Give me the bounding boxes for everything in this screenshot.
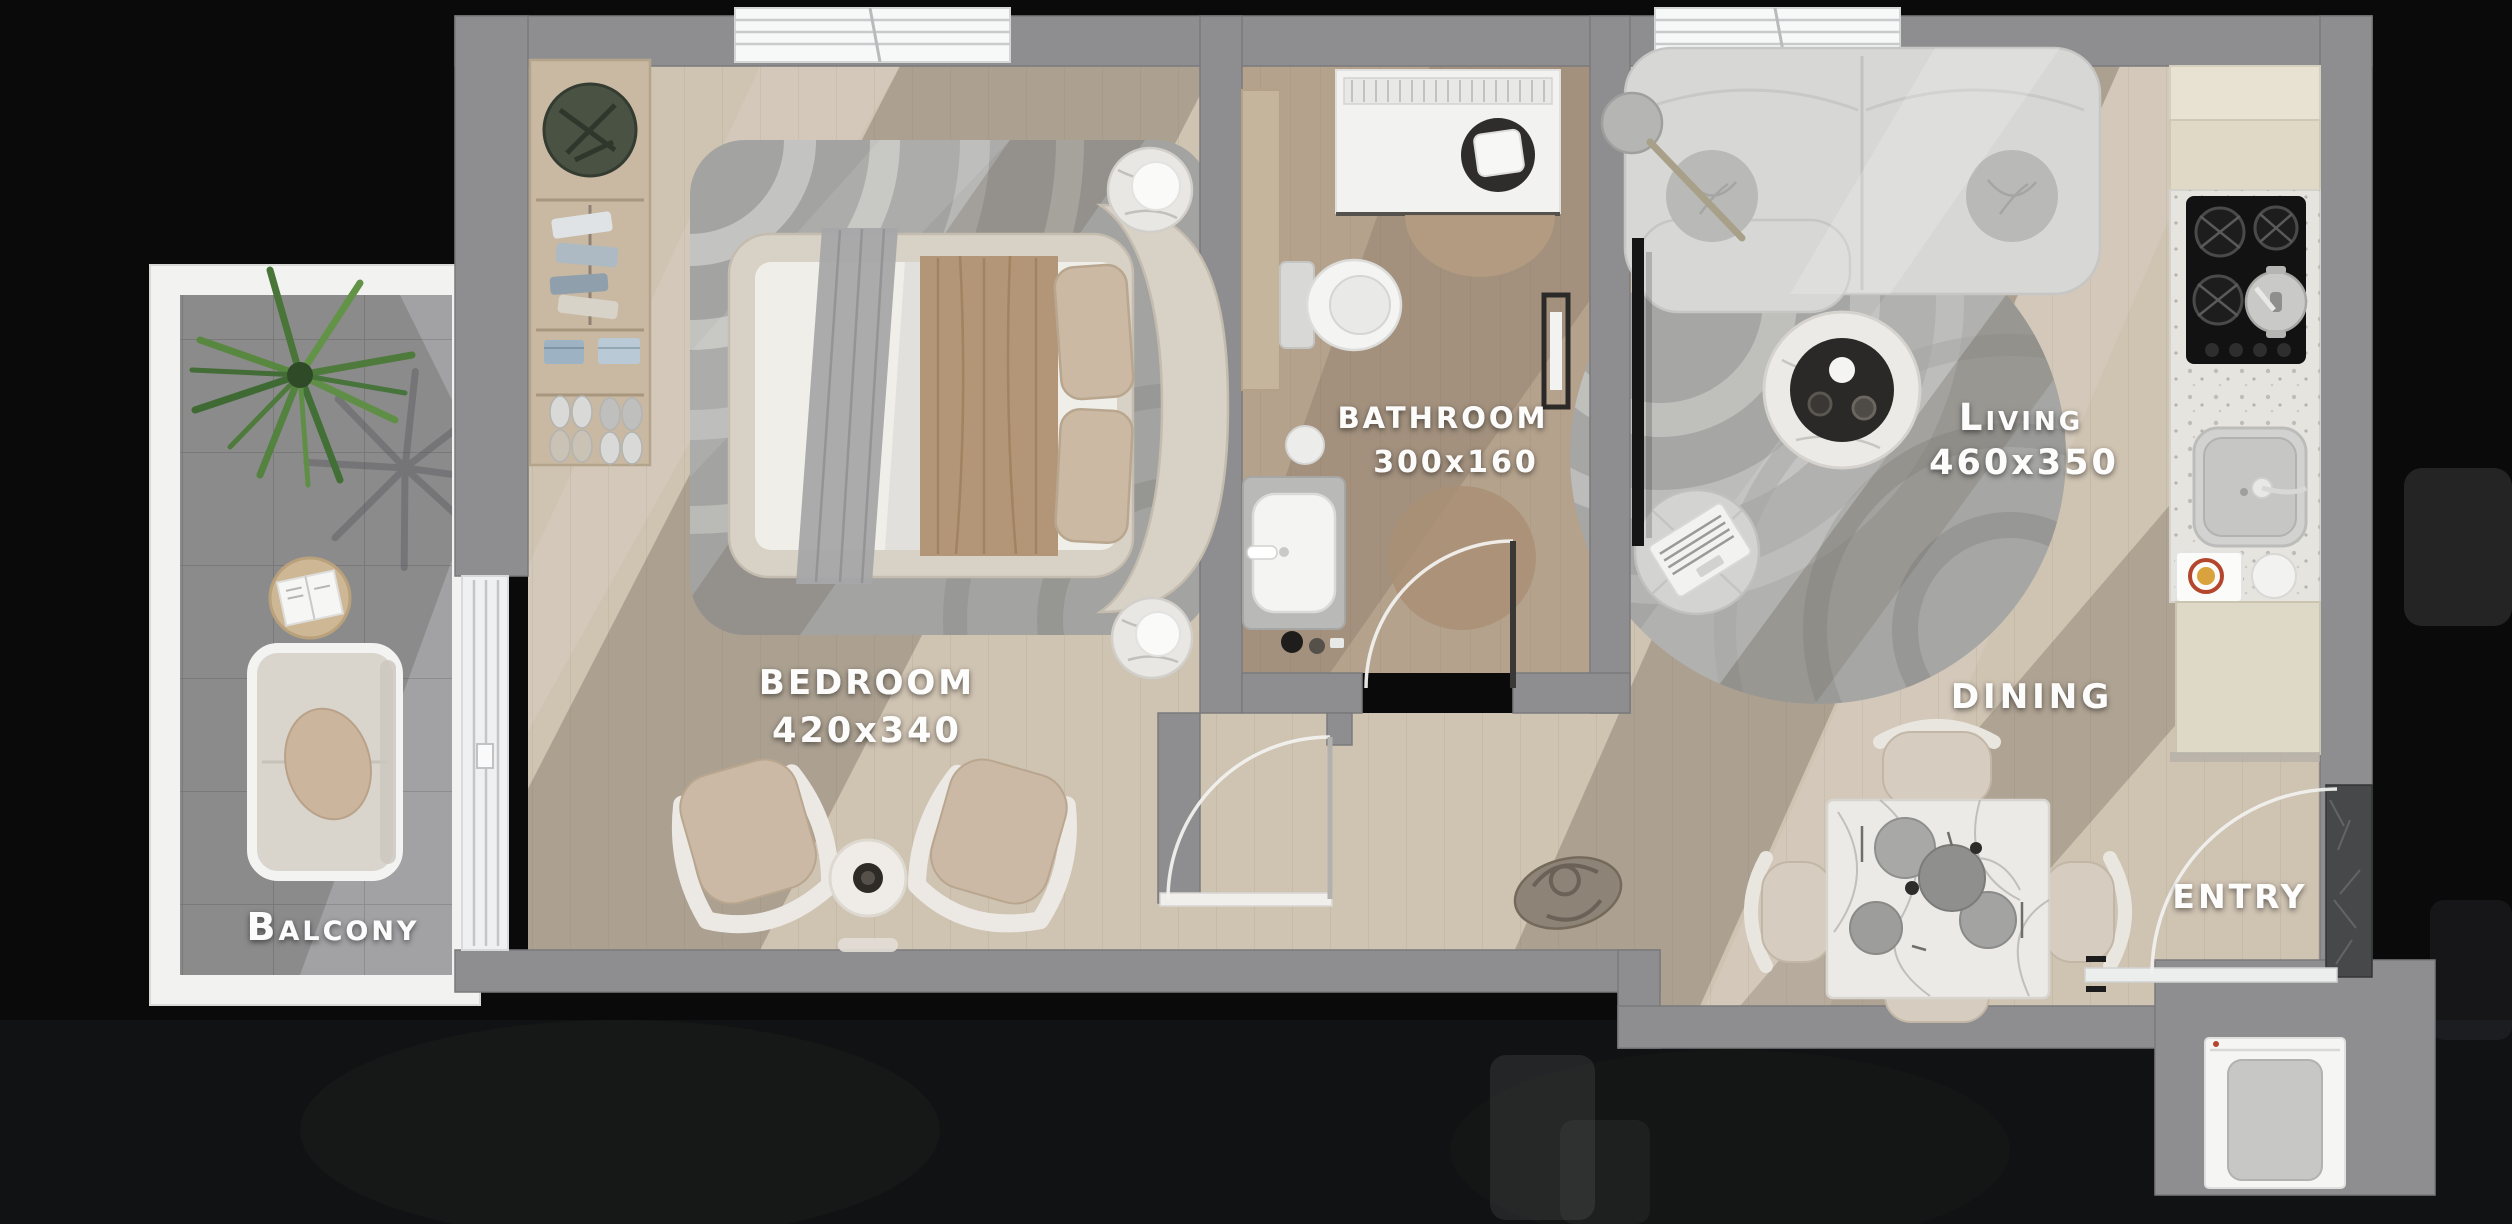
living-sofa: [1625, 48, 2100, 312]
dining-chair-right: [2044, 858, 2125, 966]
stove: [2186, 196, 2306, 364]
door-hinge: [2086, 956, 2106, 962]
folded-clothes: [598, 338, 640, 364]
dining-chair-left: [1751, 858, 1832, 966]
balcony-sliding-door: [462, 576, 508, 950]
lower-cabinet: [2176, 602, 2320, 754]
washer-door: [2228, 1060, 2322, 1180]
pillow: [1055, 408, 1134, 544]
door-threshold: [1160, 893, 1332, 906]
ball-lamp: [1132, 162, 1180, 210]
upper-cabinet: [2170, 120, 2320, 190]
decor-candle: [1809, 393, 1831, 415]
faucet: [1247, 546, 1277, 559]
shower-towel: [1473, 129, 1524, 177]
bowl: [2252, 554, 2296, 598]
wall-bathroom-bottom-left: [1242, 673, 1362, 713]
dining-chair-top: [1880, 726, 1994, 806]
decor-bowl: [1829, 357, 1855, 383]
entry-label: ENTRY: [2172, 877, 2307, 916]
decor-candle: [1853, 397, 1875, 419]
floor-plan: Balcony BEDROOM 420x340 BATHROOM 300x160…: [0, 0, 2512, 1224]
living-size: 460x350: [1929, 443, 2119, 483]
dining-table: [1827, 800, 2049, 998]
dining-label: DINING: [1951, 677, 2113, 717]
bedside-table-bottom: [1112, 598, 1192, 678]
kitchen-sink: [2194, 428, 2306, 546]
car-silhouette: [2430, 900, 2512, 1040]
bathroom-size: 300x160: [1373, 445, 1539, 480]
bath-stool: [1286, 426, 1324, 464]
kitchen: [2170, 66, 2320, 762]
balcony-label: Balcony: [247, 905, 420, 949]
bedroom-label: BEDROOM: [759, 663, 975, 703]
blanket: [920, 256, 1058, 556]
shower-grille: [1344, 78, 1552, 104]
door-handle: [477, 744, 493, 768]
door-hinge: [2086, 986, 2106, 992]
bedside-table-top: [1108, 148, 1192, 232]
bedroom-window: [735, 8, 1010, 62]
wall-bedroom-bottom: [455, 950, 1660, 992]
toilet: [1280, 260, 1401, 350]
balcony-sofa: [252, 648, 398, 876]
counter-accessories: [2176, 552, 2296, 602]
upper-cabinet: [2170, 66, 2320, 120]
pouf-with-laptop: [1635, 490, 1759, 614]
bathroom-label: BATHROOM: [1338, 401, 1549, 435]
entry-door-threshold: [2085, 968, 2337, 982]
ball-lamp: [1136, 612, 1180, 656]
pillow: [1053, 264, 1134, 401]
bath-cabinet: [1242, 90, 1280, 390]
entry-marble-wall: [2326, 785, 2372, 977]
wall-bedroom-east: [1158, 713, 1200, 903]
palm-center: [287, 362, 313, 388]
wardrobe: [530, 60, 650, 465]
bedroom-size: 420x340: [772, 711, 962, 751]
wall-bathroom-bottom-right: [1513, 673, 1630, 713]
car-silhouette: [1560, 1120, 1650, 1224]
folded-clothes: [544, 340, 584, 364]
balcony-side-table: [270, 558, 350, 638]
coffee-table: [1764, 312, 1920, 468]
vanity: [1243, 477, 1345, 629]
washer: [2205, 1038, 2345, 1188]
living-label: Living: [1959, 396, 2083, 439]
wall-tv: [1632, 238, 1652, 546]
wall-left: [455, 16, 528, 576]
car-silhouette: [2404, 468, 2512, 626]
washer-indicator: [2213, 1041, 2219, 1047]
serving-plate: [1919, 845, 1985, 911]
